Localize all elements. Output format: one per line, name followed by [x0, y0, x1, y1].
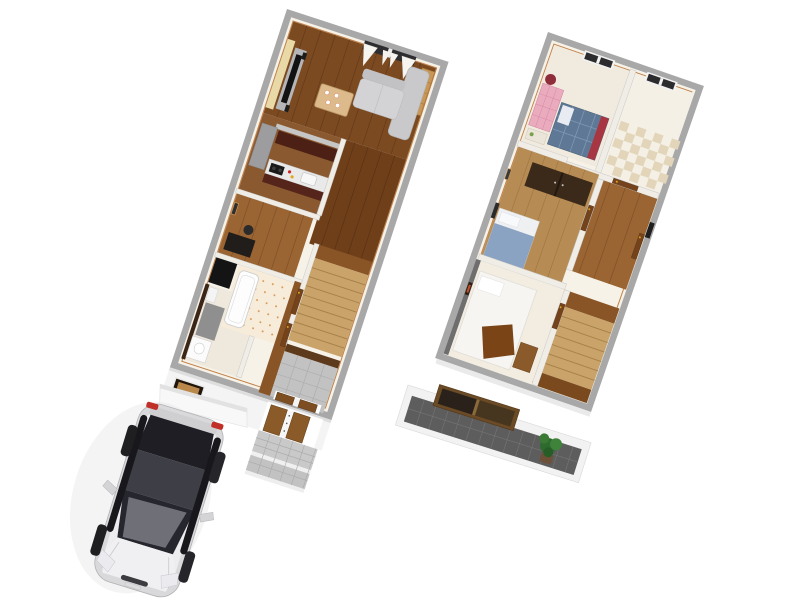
floor-plan-render [0, 0, 800, 600]
scene-svg [0, 0, 800, 600]
second-floor-plan [433, 32, 703, 417]
